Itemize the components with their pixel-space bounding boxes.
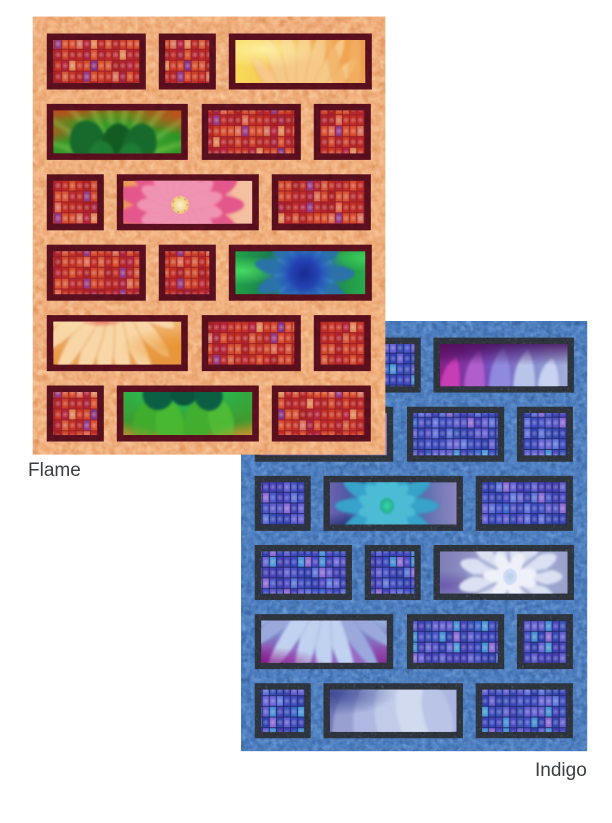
svg-text:Flame: Flame [28, 460, 81, 481]
svg-text:Indigo: Indigo [535, 760, 587, 781]
